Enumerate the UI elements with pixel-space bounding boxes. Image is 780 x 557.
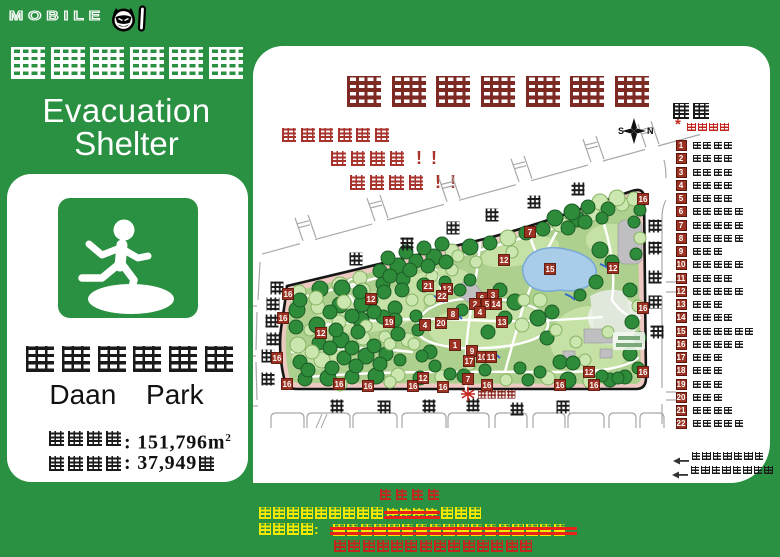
svg-text:16: 16 xyxy=(639,195,648,204)
svg-text:4: 4 xyxy=(423,321,428,330)
svg-text:16: 16 xyxy=(283,380,292,389)
svg-text:13: 13 xyxy=(498,318,507,327)
svg-text:7: 7 xyxy=(528,228,533,237)
svg-text:12: 12 xyxy=(585,368,594,377)
svg-text:4: 4 xyxy=(478,308,483,317)
svg-text:11: 11 xyxy=(487,353,496,362)
svg-text:16: 16 xyxy=(483,381,492,390)
svg-text:14: 14 xyxy=(492,300,501,309)
svg-text:15: 15 xyxy=(546,265,555,274)
svg-text:20: 20 xyxy=(437,319,446,328)
svg-text:16: 16 xyxy=(556,381,565,390)
svg-text:22: 22 xyxy=(438,292,447,301)
svg-text:7: 7 xyxy=(466,375,471,384)
svg-text:1: 1 xyxy=(453,341,458,350)
svg-text:16: 16 xyxy=(273,354,282,363)
svg-text:16: 16 xyxy=(439,383,448,392)
svg-text:16: 16 xyxy=(279,314,288,323)
svg-text:16: 16 xyxy=(639,304,648,313)
svg-text:12: 12 xyxy=(367,295,376,304)
svg-text:12: 12 xyxy=(609,264,618,273)
svg-text:8: 8 xyxy=(451,310,456,319)
svg-text:17: 17 xyxy=(465,357,474,366)
svg-text:19: 19 xyxy=(385,318,394,327)
svg-text:16: 16 xyxy=(284,290,293,299)
svg-text:12: 12 xyxy=(317,329,326,338)
svg-text:12: 12 xyxy=(419,374,428,383)
svg-text:16: 16 xyxy=(590,381,599,390)
svg-text:16: 16 xyxy=(335,380,344,389)
svg-text:21: 21 xyxy=(424,282,433,291)
svg-text:16: 16 xyxy=(639,368,648,377)
svg-text:9: 9 xyxy=(470,347,475,356)
svg-text:S: S xyxy=(618,126,624,136)
svg-text:12: 12 xyxy=(500,256,509,265)
svg-text:16: 16 xyxy=(364,382,373,391)
svg-text:16: 16 xyxy=(409,382,418,391)
svg-text:N: N xyxy=(647,126,654,136)
